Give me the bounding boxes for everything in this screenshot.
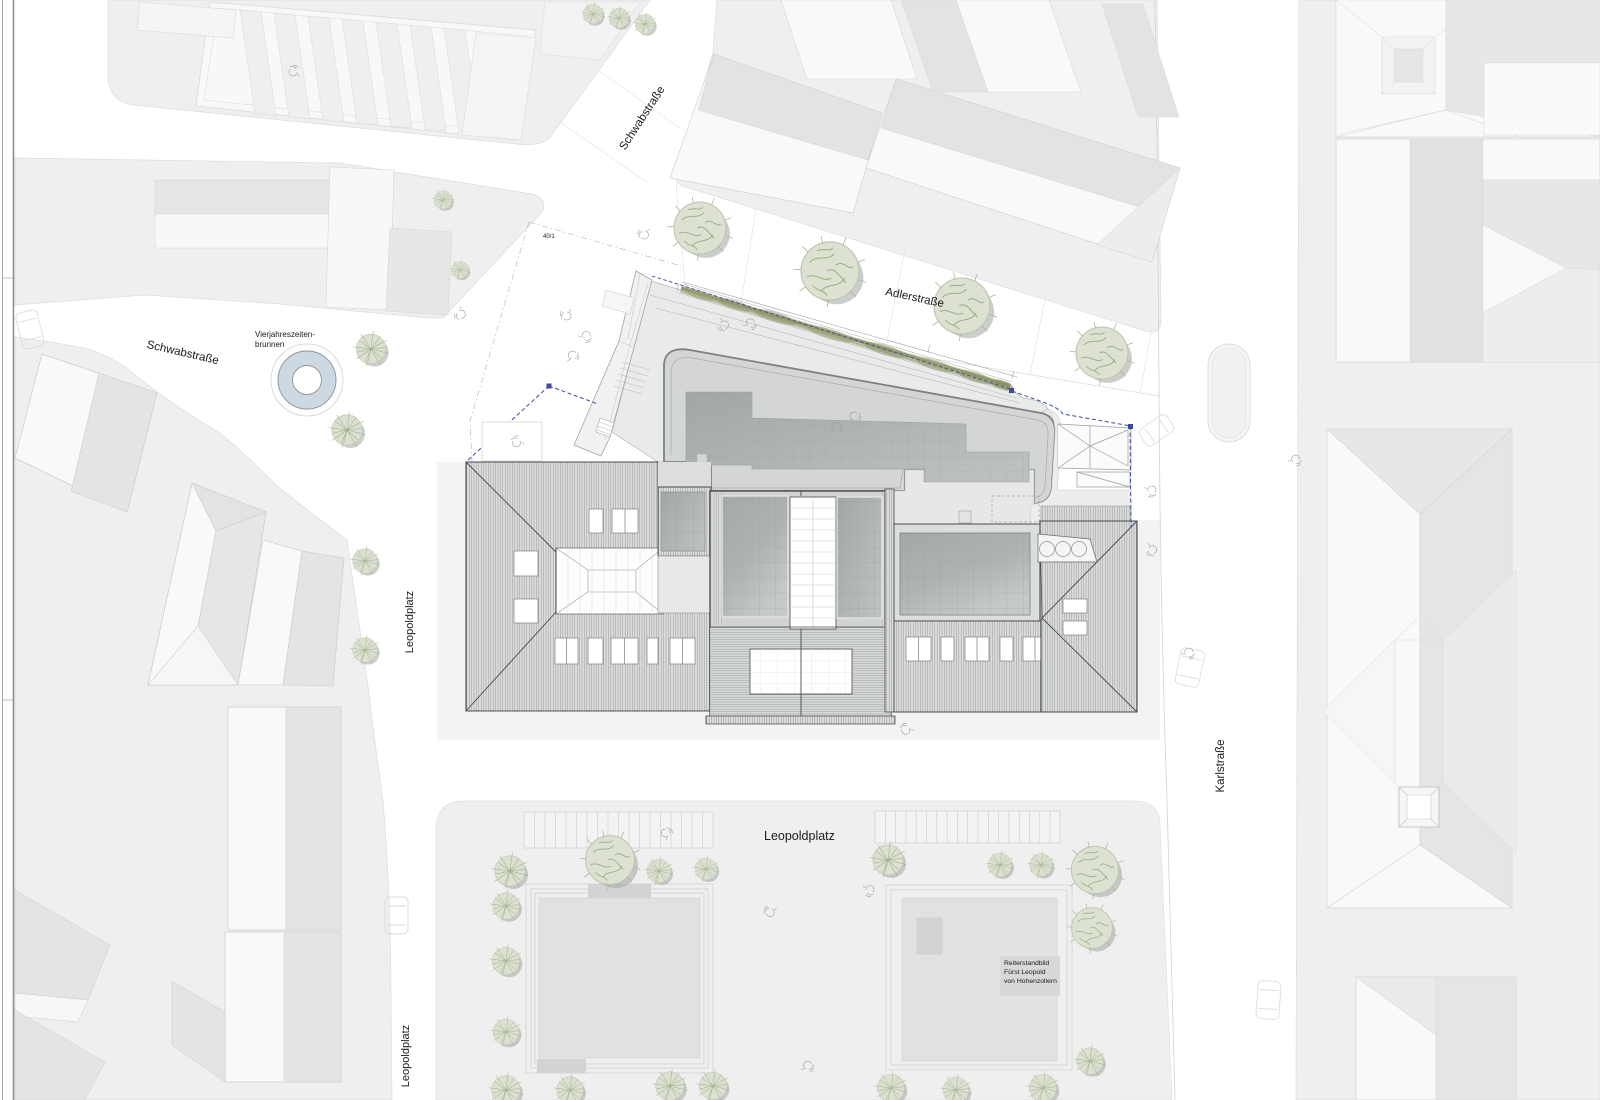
svg-text:40/1: 40/1 [543, 234, 555, 240]
svg-text:von Hohenzollern: von Hohenzollern [1004, 978, 1057, 985]
svg-text:Reiterstandbild: Reiterstandbild [1004, 960, 1050, 967]
svg-text:Vierjahreszeiten-: Vierjahreszeiten- [255, 330, 315, 339]
svg-text:Leopoldplatz: Leopoldplatz [764, 829, 835, 843]
svg-text:Fürst Leopold: Fürst Leopold [1004, 969, 1046, 976]
svg-text:Karlstraße: Karlstraße [1215, 739, 1227, 792]
svg-text:brunnen: brunnen [255, 340, 284, 349]
svg-text:Leopoldplatz: Leopoldplatz [400, 1025, 412, 1087]
svg-text:Leopoldplatz: Leopoldplatz [404, 591, 416, 653]
